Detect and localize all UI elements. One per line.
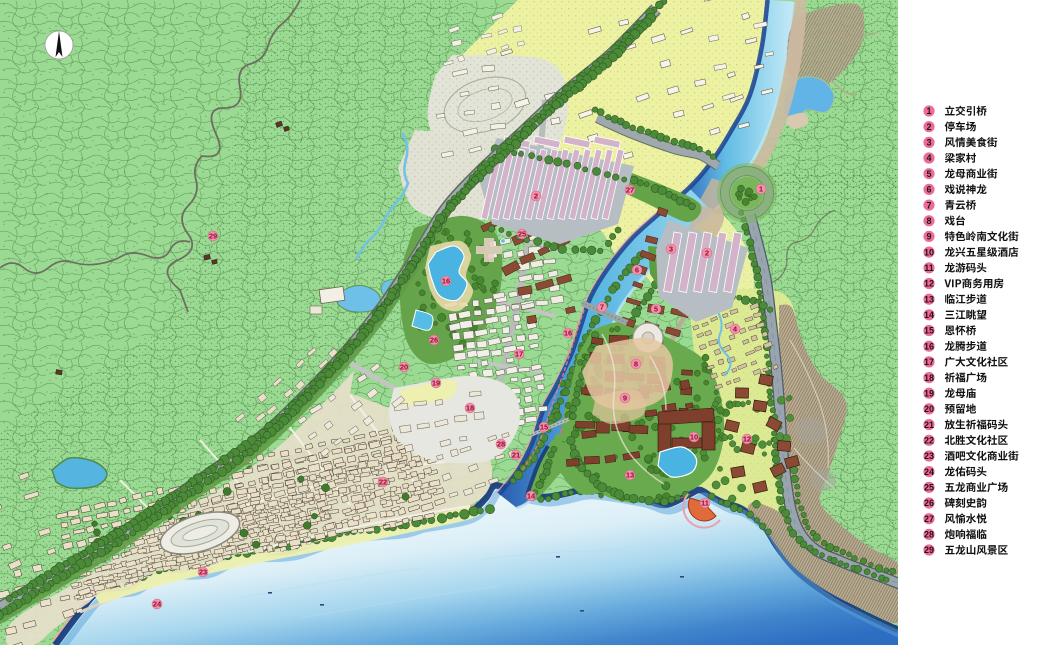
svg-text:26: 26 — [924, 498, 934, 508]
svg-text:16: 16 — [564, 329, 572, 338]
svg-text:27: 27 — [924, 514, 934, 524]
svg-text:7: 7 — [926, 200, 931, 210]
svg-text:18: 18 — [466, 404, 474, 413]
svg-text:25: 25 — [924, 483, 934, 493]
svg-text:20: 20 — [924, 404, 934, 414]
svg-text:13: 13 — [924, 294, 934, 304]
svg-text:15: 15 — [924, 326, 934, 336]
svg-text:10: 10 — [924, 247, 934, 257]
svg-text:2: 2 — [926, 122, 931, 132]
svg-text:12: 12 — [924, 279, 934, 289]
svg-text:28: 28 — [924, 530, 934, 540]
svg-text:29: 29 — [209, 232, 217, 241]
svg-text:5: 5 — [654, 305, 658, 314]
svg-text:16: 16 — [924, 341, 934, 351]
svg-text:12: 12 — [743, 435, 751, 444]
svg-text:25: 25 — [518, 230, 526, 239]
svg-text:7: 7 — [600, 303, 604, 312]
svg-text:8: 8 — [926, 216, 931, 226]
svg-text:19: 19 — [432, 379, 440, 388]
svg-text:1: 1 — [926, 106, 931, 116]
svg-text:4: 4 — [926, 153, 931, 163]
svg-text:3: 3 — [669, 245, 673, 254]
svg-text:19: 19 — [924, 388, 934, 398]
svg-text:3: 3 — [926, 138, 931, 148]
svg-text:1: 1 — [759, 185, 763, 194]
svg-text:6: 6 — [635, 266, 639, 275]
svg-text:14: 14 — [527, 492, 536, 501]
svg-text:2: 2 — [705, 249, 709, 258]
svg-text:10: 10 — [690, 433, 698, 442]
svg-text:2: 2 — [534, 192, 538, 201]
svg-text:11: 11 — [924, 263, 934, 273]
svg-text:22: 22 — [379, 478, 387, 487]
svg-text:13: 13 — [626, 471, 634, 480]
svg-text:24: 24 — [924, 467, 934, 477]
svg-text:8: 8 — [634, 360, 638, 369]
svg-text:23: 23 — [924, 451, 934, 461]
svg-text:16: 16 — [442, 277, 450, 286]
svg-text:24: 24 — [153, 600, 162, 609]
svg-text:14: 14 — [924, 310, 934, 320]
svg-text:6: 6 — [926, 185, 931, 195]
svg-text:22: 22 — [924, 436, 934, 446]
svg-text:9: 9 — [623, 394, 627, 403]
svg-text:5: 5 — [926, 169, 931, 179]
svg-text:11: 11 — [701, 499, 709, 508]
svg-text:23: 23 — [199, 568, 207, 577]
svg-text:28: 28 — [497, 440, 505, 449]
svg-text:17: 17 — [924, 357, 934, 367]
svg-text:9: 9 — [926, 232, 931, 242]
svg-text:17: 17 — [515, 350, 523, 359]
svg-text:26: 26 — [430, 336, 438, 345]
svg-text:20: 20 — [400, 363, 408, 372]
svg-text:21: 21 — [924, 420, 934, 430]
svg-text:15: 15 — [540, 423, 548, 432]
svg-text:21: 21 — [512, 451, 520, 460]
svg-text:27: 27 — [626, 186, 634, 195]
svg-text:18: 18 — [924, 373, 934, 383]
svg-text:29: 29 — [924, 545, 934, 555]
